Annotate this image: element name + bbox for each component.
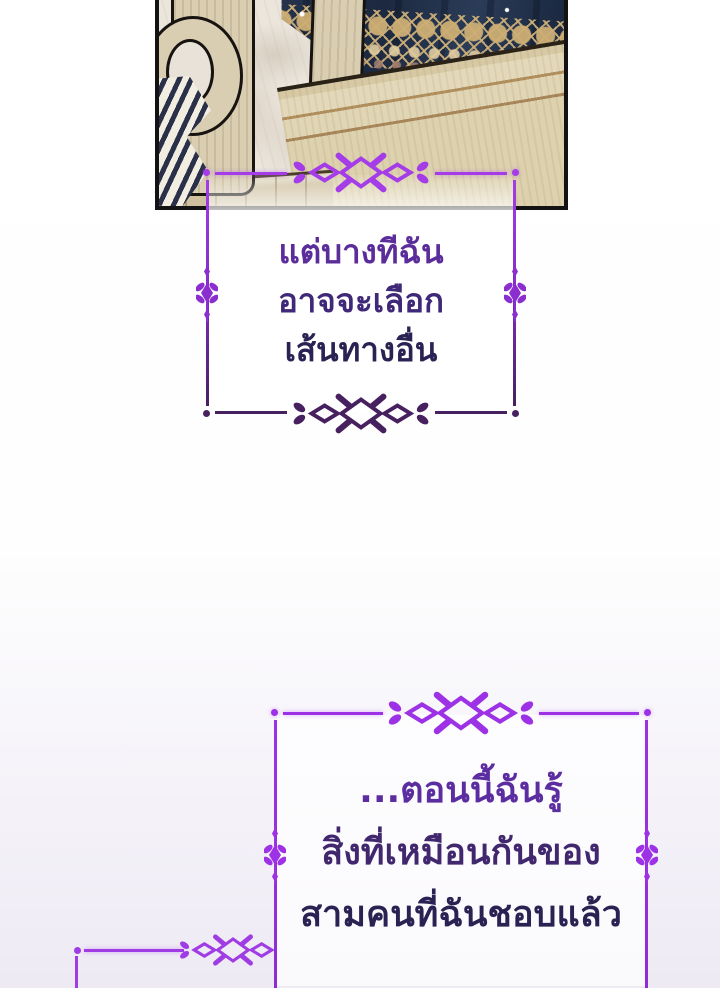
webtoon-page: แต่บางทีฉัน อาจจะเลือก เส้นทางอื่น <box>0 0 720 988</box>
frame-ornament-icon <box>291 151 431 194</box>
frame-line <box>435 172 507 175</box>
dialog-line: อาจจะเลือก <box>207 276 515 325</box>
frame-ornament-icon <box>386 690 536 736</box>
frame-line <box>75 956 78 988</box>
frame-line <box>84 949 184 952</box>
dialog-line: สิ่งที่เหมือนกันของ <box>275 822 647 884</box>
corner-dot-icon <box>271 709 278 716</box>
corner-dot-icon <box>203 410 210 417</box>
frame-ornament-icon <box>178 927 274 973</box>
dialog-line: ...ตอนนี้ฉันรู้ <box>275 760 647 822</box>
frame-line <box>215 411 287 414</box>
corner-dot-icon <box>74 947 81 954</box>
frame-ornament-icon <box>291 392 431 435</box>
dialog-box-1: แต่บางทีฉัน อาจจะเลือก เส้นทางอื่น <box>207 173 515 413</box>
frame-line <box>539 712 639 715</box>
dialog-line: แต่บางทีฉัน <box>207 227 515 276</box>
dialog-text: แต่บางทีฉัน อาจจะเลือก เส้นทางอื่น <box>207 227 515 374</box>
corner-dot-icon <box>644 709 651 716</box>
dialog-box-2: ...ตอนนี้ฉันรู้ สิ่งที่เหมือนกันของ สามค… <box>275 713 647 988</box>
frame-line <box>283 712 383 715</box>
corner-dot-icon <box>512 410 519 417</box>
corner-dot-icon <box>203 169 210 176</box>
dialog-line: เส้นทางอื่น <box>207 325 515 374</box>
dialog-line: สามคนที่ฉันชอบแล้ว <box>275 884 647 946</box>
corner-dot-icon <box>512 169 519 176</box>
frame-line <box>435 411 507 414</box>
frame-line <box>215 172 287 175</box>
dialog-text: ...ตอนนี้ฉันรู้ สิ่งที่เหมือนกันของ สามค… <box>275 760 647 946</box>
